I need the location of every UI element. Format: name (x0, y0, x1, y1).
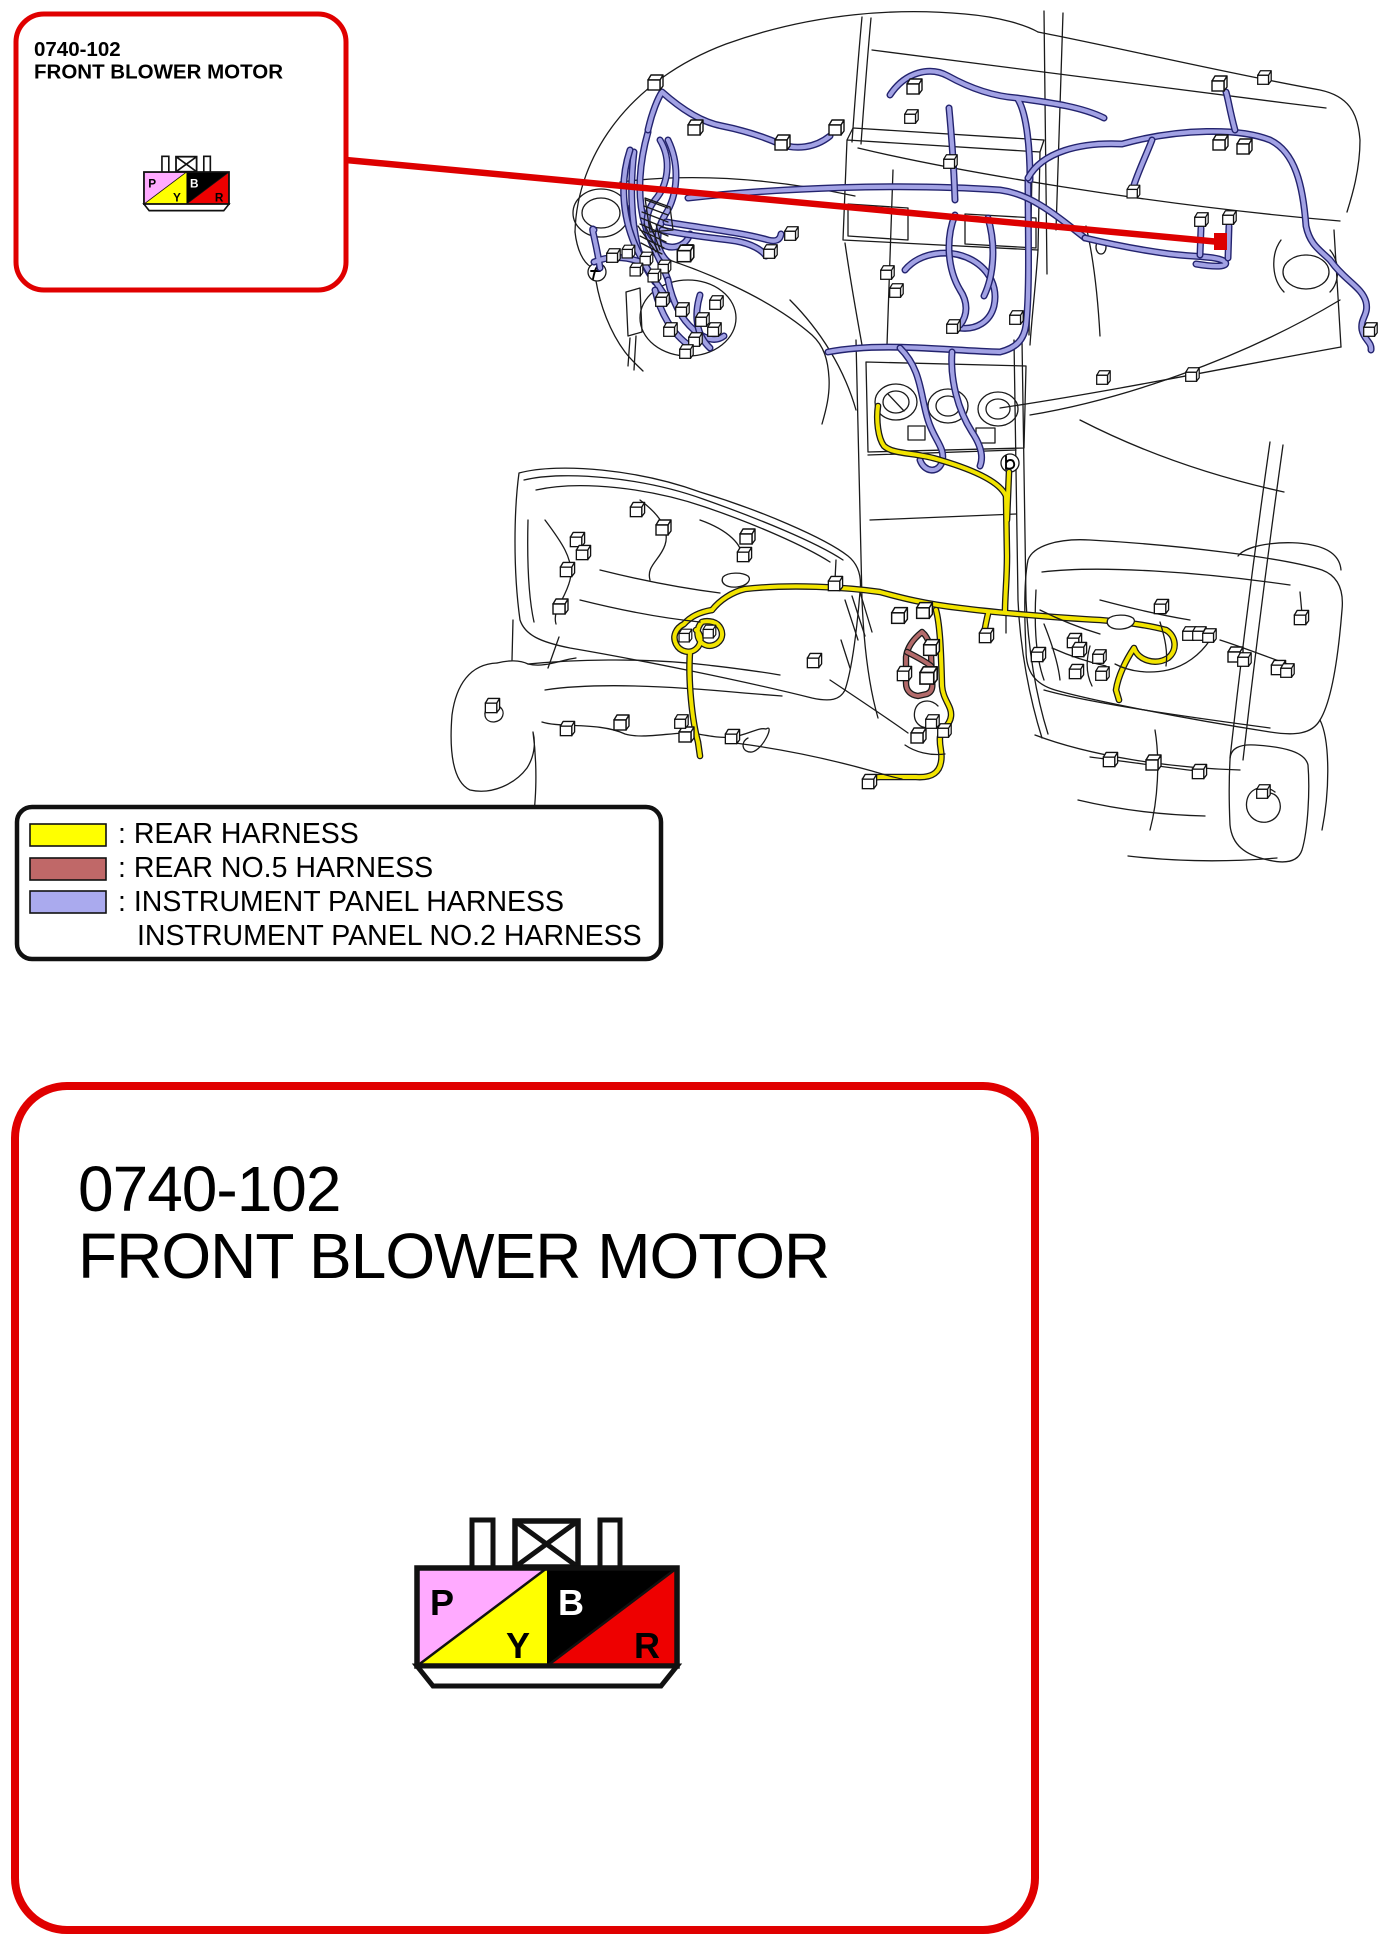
svg-text:: REAR NO.5 HARNESS: : REAR NO.5 HARNESS (118, 852, 433, 884)
svg-text:FRONT BLOWER MOTOR: FRONT BLOWER MOTOR (34, 61, 283, 84)
svg-text:INSTRUMENT PANEL NO.2 HARNESS: INSTRUMENT PANEL NO.2 HARNESS (137, 920, 642, 952)
svg-text:0740-102: 0740-102 (78, 1153, 340, 1225)
svg-text:: REAR HARNESS: : REAR HARNESS (118, 818, 359, 850)
svg-text:: INSTRUMENT PANEL HARNESS: : INSTRUMENT PANEL HARNESS (118, 886, 564, 918)
svg-text:FRONT BLOWER MOTOR: FRONT BLOWER MOTOR (78, 1220, 829, 1292)
svg-text:0740-102: 0740-102 (34, 38, 121, 61)
